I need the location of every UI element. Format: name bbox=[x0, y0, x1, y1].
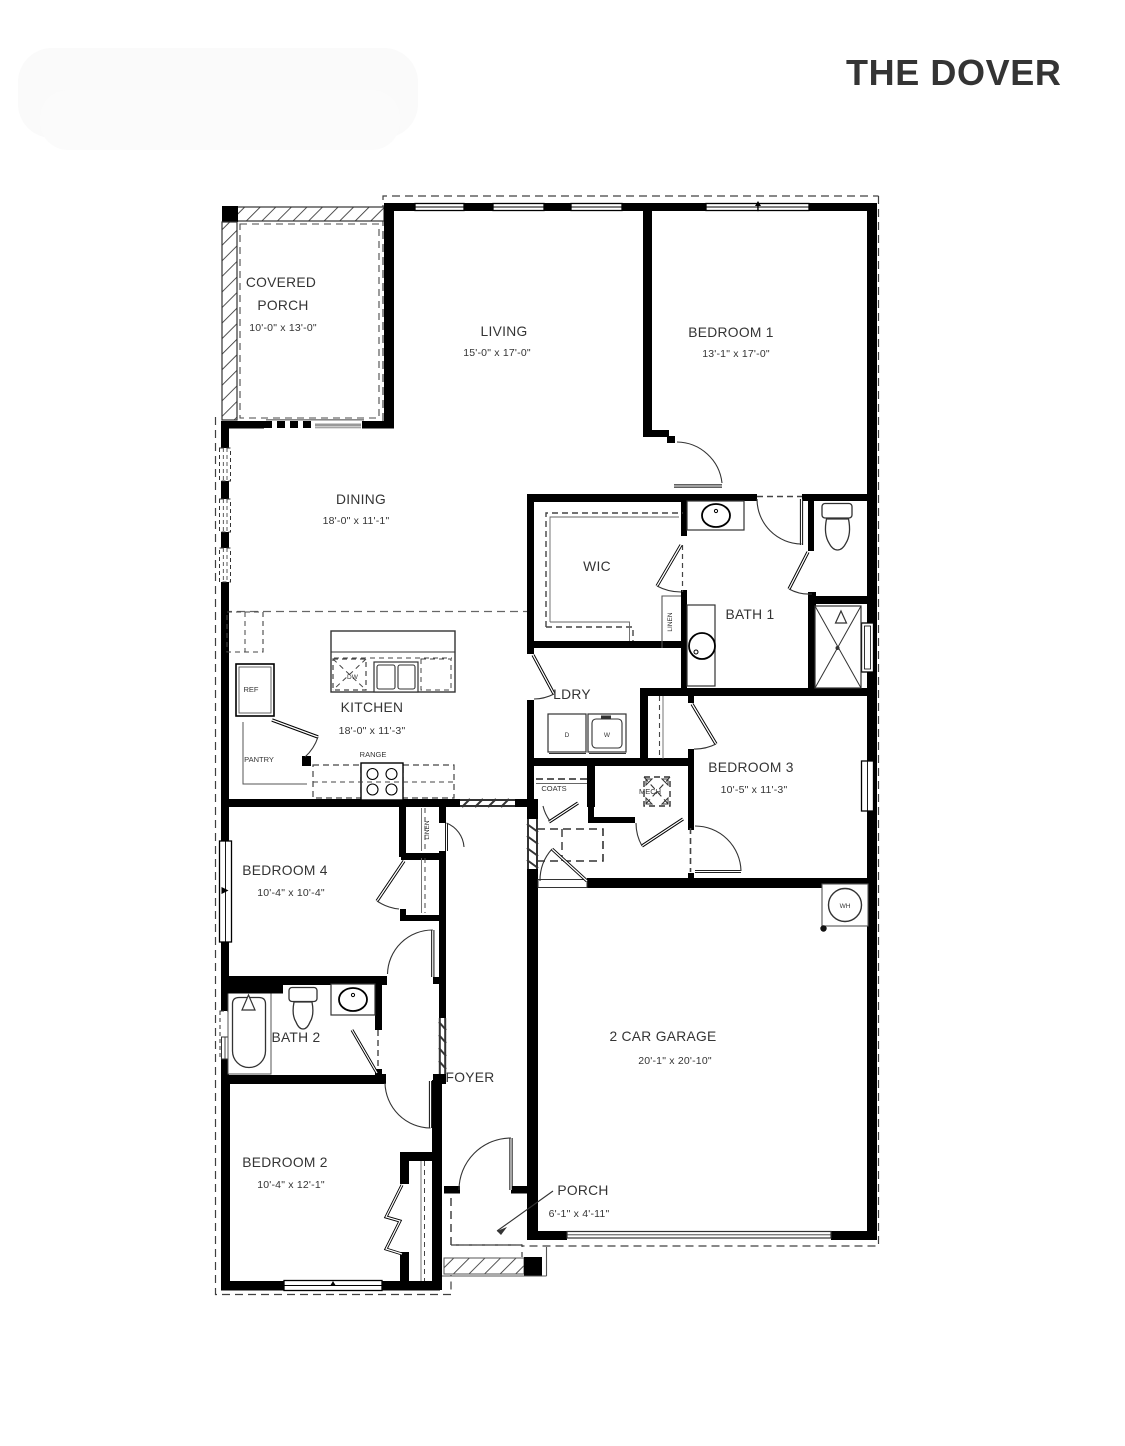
svg-text:DW: DW bbox=[347, 674, 359, 681]
svg-text:THE DOVER: THE DOVER bbox=[846, 52, 1061, 93]
svg-text:BATH 1: BATH 1 bbox=[725, 607, 774, 622]
svg-text:PORCH: PORCH bbox=[557, 1183, 608, 1198]
svg-text:WIC: WIC bbox=[583, 559, 611, 574]
svg-text:BEDROOM 1: BEDROOM 1 bbox=[688, 325, 774, 340]
svg-text:13'-1" x 17'-0": 13'-1" x 17'-0" bbox=[702, 348, 770, 360]
svg-text:D: D bbox=[565, 732, 570, 739]
svg-text:PANTRY: PANTRY bbox=[244, 755, 274, 764]
svg-text:10'-5" x 11'-3": 10'-5" x 11'-3" bbox=[721, 784, 788, 796]
svg-text:FOYER: FOYER bbox=[445, 1070, 494, 1085]
svg-text:LINEN: LINEN bbox=[667, 612, 674, 631]
svg-text:RANGE: RANGE bbox=[360, 750, 387, 759]
svg-text:BEDROOM 3: BEDROOM 3 bbox=[708, 760, 794, 775]
svg-text:10'-4" x 12'-1": 10'-4" x 12'-1" bbox=[257, 1179, 325, 1191]
svg-text:2 CAR GARAGE: 2 CAR GARAGE bbox=[609, 1029, 716, 1044]
svg-text:BATH 2: BATH 2 bbox=[271, 1030, 320, 1045]
svg-text:DINING: DINING bbox=[336, 492, 386, 507]
svg-text:18'-0" x 11'-1": 18'-0" x 11'-1" bbox=[323, 515, 390, 527]
svg-text:LIVING: LIVING bbox=[480, 324, 527, 339]
svg-text:REF: REF bbox=[244, 685, 259, 694]
svg-text:10'-0" x 13'-0": 10'-0" x 13'-0" bbox=[249, 322, 317, 334]
svg-text:WH: WH bbox=[840, 903, 851, 910]
svg-text:PORCH: PORCH bbox=[257, 298, 308, 313]
svg-text:15'-0" x 17'-0": 15'-0" x 17'-0" bbox=[463, 347, 531, 359]
svg-text:20'-1" x 20'-10": 20'-1" x 20'-10" bbox=[638, 1055, 712, 1067]
svg-text:COVERED: COVERED bbox=[246, 275, 316, 290]
svg-text:6'-1" x 4'-11": 6'-1" x 4'-11" bbox=[549, 1208, 610, 1220]
svg-text:18'-0" x 11'-3": 18'-0" x 11'-3" bbox=[339, 725, 406, 737]
svg-text:COATS: COATS bbox=[541, 784, 566, 793]
svg-text:BEDROOM 2: BEDROOM 2 bbox=[242, 1155, 328, 1170]
svg-text:KITCHEN: KITCHEN bbox=[341, 700, 404, 715]
svg-text:LINEN: LINEN bbox=[424, 820, 431, 839]
svg-text:10'-4" x 10'-4": 10'-4" x 10'-4" bbox=[257, 887, 325, 899]
svg-text:BEDROOM 4: BEDROOM 4 bbox=[242, 863, 328, 878]
svg-text:MECH: MECH bbox=[639, 787, 661, 796]
svg-text:W: W bbox=[604, 732, 611, 739]
svg-text:LDRY: LDRY bbox=[553, 687, 591, 702]
